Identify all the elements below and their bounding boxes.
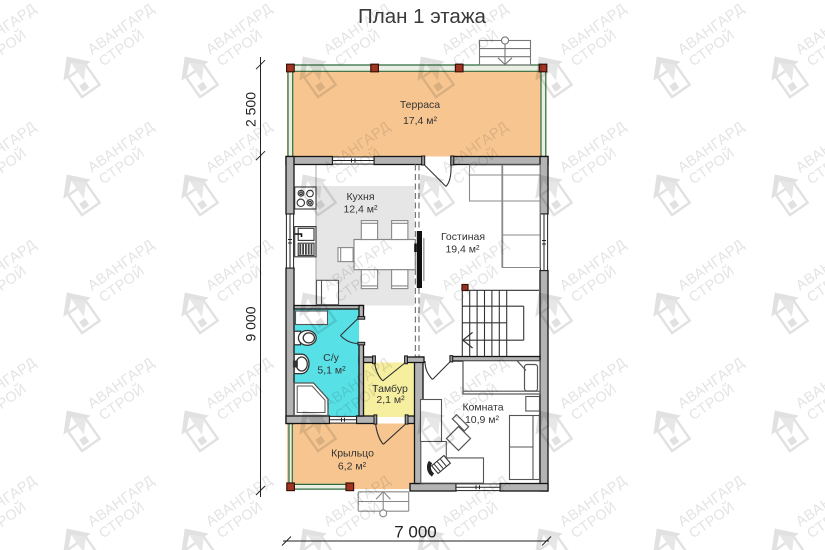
svg-text:Кухня: Кухня xyxy=(346,191,374,203)
svg-text:5,1 м²: 5,1 м² xyxy=(317,365,346,377)
svg-text:Крыльцо: Крыльцо xyxy=(331,448,374,460)
svg-text:6,2 м²: 6,2 м² xyxy=(338,461,367,473)
svg-text:2 500: 2 500 xyxy=(243,92,259,127)
svg-text:17,4 м²: 17,4 м² xyxy=(403,115,438,127)
svg-text:Терраса: Терраса xyxy=(400,99,440,111)
svg-text:С/у: С/у xyxy=(323,352,340,364)
svg-text:12,4 м²: 12,4 м² xyxy=(343,204,378,216)
svg-text:19,4 м²: 19,4 м² xyxy=(445,244,480,256)
svg-text:Гостиная: Гостиная xyxy=(441,231,485,243)
svg-text:9 000: 9 000 xyxy=(243,306,259,341)
